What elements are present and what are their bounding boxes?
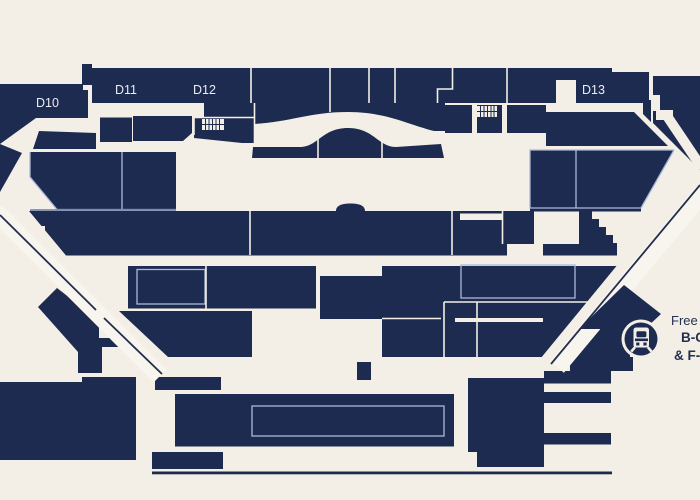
svg-text:D11: D11 <box>115 83 137 97</box>
svg-text:D10: D10 <box>36 96 59 110</box>
svg-text:D13: D13 <box>582 83 605 97</box>
svg-text:B-Ga: B-Ga <box>681 330 700 345</box>
svg-text:D12: D12 <box>193 83 216 97</box>
svg-text:& F-G: & F-G <box>674 348 700 363</box>
svg-text:Free S: Free S <box>671 313 700 328</box>
